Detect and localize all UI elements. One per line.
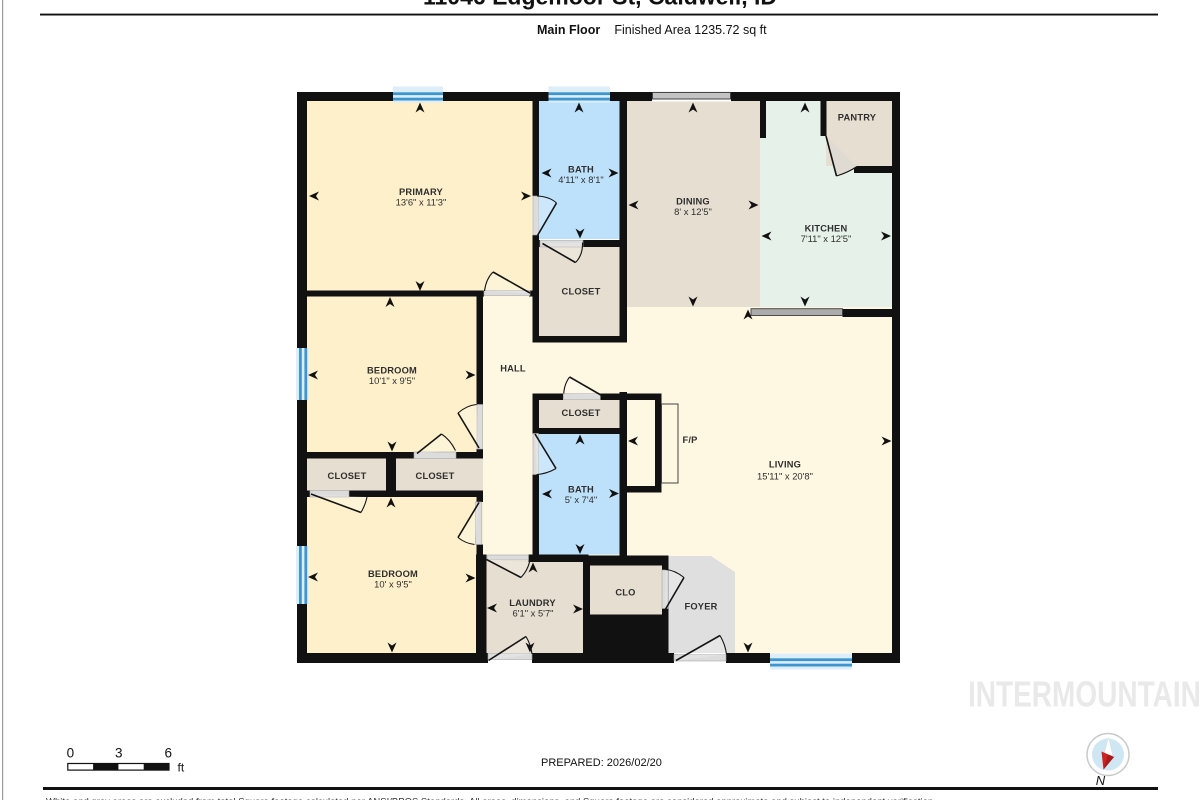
- svg-text:Main Floor: Main Floor: [537, 23, 600, 37]
- svg-text:CLOSET: CLOSET: [562, 287, 601, 297]
- svg-text:KITCHEN: KITCHEN: [805, 224, 848, 234]
- svg-text:PRIMARY: PRIMARY: [399, 187, 444, 197]
- svg-text:PREPARED: 2026/02/20: PREPARED: 2026/02/20: [541, 757, 662, 769]
- svg-text:8' x 12'5": 8' x 12'5": [674, 206, 712, 217]
- svg-text:CLOSET: CLOSET: [416, 471, 455, 481]
- svg-text:CLO: CLO: [615, 588, 635, 598]
- svg-text:BEDROOM: BEDROOM: [368, 569, 418, 579]
- svg-text:N: N: [1096, 773, 1106, 788]
- svg-text:ft: ft: [178, 761, 185, 775]
- svg-text:BATH: BATH: [568, 485, 594, 495]
- svg-text:6: 6: [164, 746, 172, 761]
- svg-text:Finished Area 1235.72 sq ft: Finished Area 1235.72 sq ft: [614, 23, 767, 37]
- svg-text:0: 0: [67, 746, 75, 761]
- svg-text:6'1" x 5'7": 6'1" x 5'7": [513, 608, 554, 619]
- svg-text:BATH: BATH: [568, 165, 594, 175]
- svg-text:13'6" x 11'3": 13'6" x 11'3": [396, 197, 447, 208]
- svg-text:PANTRY: PANTRY: [838, 112, 877, 122]
- svg-text:LAUNDRY: LAUNDRY: [509, 598, 556, 608]
- svg-text:15'11" x 20'8": 15'11" x 20'8": [757, 471, 813, 482]
- svg-text:LIVING: LIVING: [769, 460, 801, 470]
- svg-text:F/P: F/P: [682, 435, 697, 445]
- svg-text:4'11" x 8'1": 4'11" x 8'1": [558, 174, 604, 185]
- svg-text:CLOSET: CLOSET: [562, 408, 601, 418]
- svg-text:BEDROOM: BEDROOM: [367, 366, 417, 376]
- svg-text:CLOSET: CLOSET: [328, 471, 367, 481]
- svg-text:10' x 9'5": 10' x 9'5": [374, 579, 412, 590]
- svg-text:HALL: HALL: [500, 363, 526, 373]
- svg-text:5' x 7'4": 5' x 7'4": [565, 494, 597, 505]
- svg-text:7'11" x 12'5": 7'11" x 12'5": [801, 233, 852, 244]
- svg-text:10'1" x 9'5": 10'1" x 9'5": [369, 375, 415, 386]
- svg-text:3: 3: [115, 746, 123, 761]
- svg-text:11046 Edgemoor St, Caldwell, I: 11046 Edgemoor St, Caldwell, ID: [423, 0, 777, 10]
- svg-text:FOYER: FOYER: [684, 602, 717, 612]
- svg-text:DINING: DINING: [676, 197, 710, 207]
- svg-text:INTERMOUNTAIN: INTERMOUNTAIN: [968, 674, 1200, 714]
